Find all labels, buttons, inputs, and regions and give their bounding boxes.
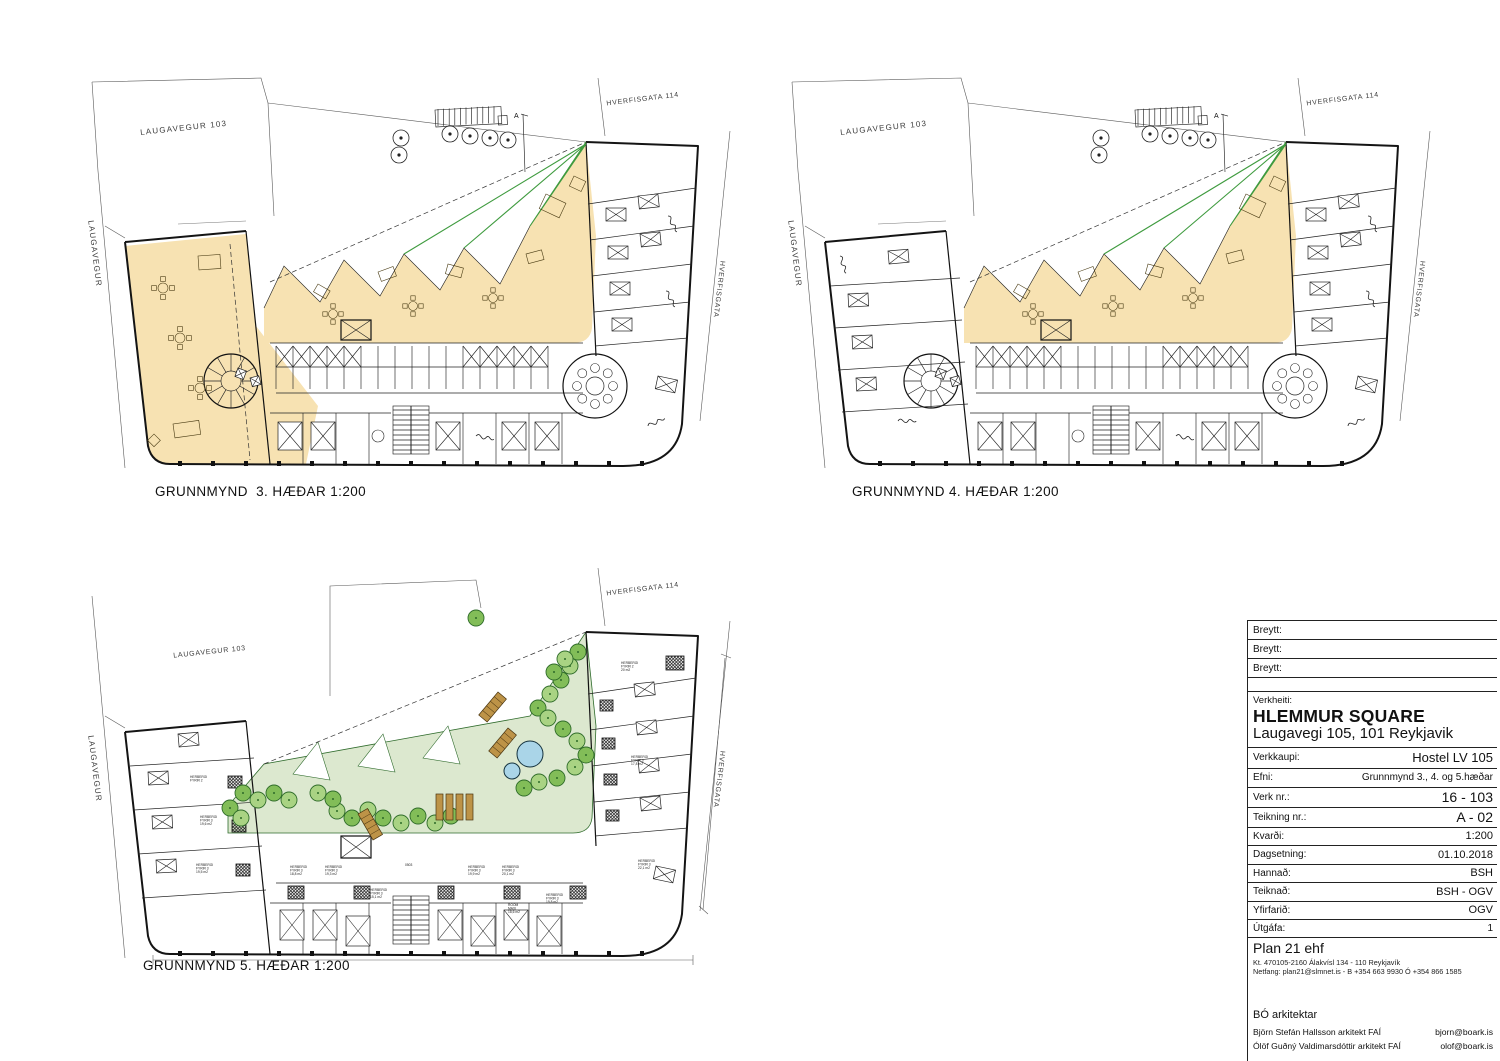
revision-row: Breytt: — [1248, 621, 1497, 640]
svg-text:HERBERGIFYRIR 319,6 m2: HERBERGIFYRIR 319,6 m2 — [200, 815, 217, 826]
svg-text:HERBERGIFYRIR 315,1 m2: HERBERGIFYRIR 315,1 m2 — [370, 888, 387, 899]
floor-plan-3: LAUGAVEGUR 103 LAUGAVEGUR HVERFISGATA 11… — [78, 76, 748, 482]
company-name: Plan 21 ehf — [1253, 940, 1493, 956]
revision-row: Breytt: — [1248, 659, 1497, 678]
street-label: LAUGAVEGUR 103 — [140, 119, 228, 137]
street-trees — [1091, 126, 1216, 163]
project-address: Laugavegi 105, 101 Reykjavik — [1253, 726, 1493, 743]
svg-text:ROOMMAXI18,6 m2: ROOMMAXI18,6 m2 — [508, 903, 520, 914]
revision-label: Breytt: — [1253, 644, 1282, 655]
street-label: LAUGAVEGUR — [786, 220, 803, 288]
field-row: Teiknað: BSH - OGV — [1248, 883, 1497, 902]
street-trees — [391, 126, 516, 163]
street-label: HVERFISGATA 114 — [606, 582, 679, 598]
field-row: Verk nr.: 16 - 103 — [1248, 788, 1497, 808]
architect-name: Björn Stefán Hallsson arkitekt FAÍ — [1253, 1026, 1381, 1039]
field-label: Verkkaupi: — [1253, 752, 1300, 763]
architect-name: Ólöf Guðný Valdimarsdóttir arkitekt FAÍ — [1253, 1040, 1401, 1053]
architects-block: BÓ arkitektar Björn Stefán Hallsson arki… — [1248, 983, 1497, 1061]
plan-caption-floor4: GRUNNMYND 4. HÆÐAR 1:200 — [852, 484, 1059, 499]
field-label: Hannað: — [1253, 868, 1291, 879]
svg-text:HERBERGIFYRIR 319,5 m2: HERBERGIFYRIR 319,5 m2 — [196, 863, 213, 874]
company-registration: Kt. 470105-2160 Álakvísl 134 - 110 Reykj… — [1253, 958, 1493, 968]
field-label: Útgáfa: — [1253, 923, 1285, 934]
architect-email: olof@boark.is — [1440, 1040, 1493, 1053]
svg-text:HERBERGIFYRIR 318,8 m2: HERBERGIFYRIR 318,8 m2 — [290, 865, 307, 876]
field-row: Verkkaupi: Hostel LV 105 — [1248, 748, 1497, 769]
section-marker: A — [514, 113, 519, 120]
company-contact: Netfang: plan21@slmnet.is - B +354 663 9… — [1253, 967, 1493, 977]
section-marker: A — [1214, 113, 1219, 120]
title-block: Breytt: Breytt: Breytt: Verkheiti: HLEMM… — [1247, 620, 1497, 1061]
company-block: Plan 21 ehf Kt. 470105-2160 Álakvísl 134… — [1248, 938, 1497, 984]
field-value: 16 - 103 — [1442, 789, 1493, 805]
field-value: 1 — [1487, 923, 1493, 934]
drawing-sheet: LAUGAVEGUR 103 LAUGAVEGUR HVERFISGATA 11… — [0, 0, 1500, 1061]
field-label: Kvarði: — [1253, 831, 1284, 842]
field-value: BSH — [1470, 867, 1493, 879]
revision-label: Breytt: — [1253, 625, 1282, 636]
field-label: Yfirfarið: — [1253, 905, 1290, 916]
architect-row: Ólöf Guðný Valdimarsdóttir arkitekt FAÍ … — [1253, 1040, 1493, 1053]
field-label: Dagsetning: — [1253, 849, 1306, 860]
street-label: LAUGAVEGUR 103 — [840, 119, 928, 137]
exterior-stair — [435, 106, 507, 127]
field-value: OGV — [1469, 904, 1493, 916]
project-label: Verkheiti: — [1253, 695, 1493, 706]
common-area-highlight — [125, 142, 596, 464]
svg-text:HERBERGIFYRIR 322,1 m2: HERBERGIFYRIR 322,1 m2 — [638, 859, 655, 870]
svg-text:HERBERGIFYRIR 320,1 m2: HERBERGIFYRIR 320,1 m2 — [502, 865, 519, 876]
field-row: Hannað: BSH — [1248, 865, 1497, 883]
common-area-highlight — [964, 142, 1296, 343]
project-block: Verkheiti: HLEMMUR SQUARE Laugavegi 105,… — [1248, 692, 1497, 748]
architect-row: Björn Stefán Hallsson arkitekt FAÍ bjorn… — [1253, 1026, 1493, 1039]
architect-email: bjorn@boark.is — [1435, 1026, 1493, 1039]
floor-plan-5: LAUGAVEGUR 103 LAUGAVEGUR HVERFISGATA 11… — [78, 566, 748, 966]
street-label: LAUGAVEGUR — [86, 220, 103, 288]
field-row: Dagsetning: 01.10.2018 — [1248, 846, 1497, 865]
field-value: 1:200 — [1465, 830, 1493, 842]
field-label: Teikning nr.: — [1253, 812, 1306, 823]
field-row: Útgáfa: 1 — [1248, 920, 1497, 938]
plan-caption-floor3: GRUNNMYND 3. HÆÐAR 1:200 — [155, 484, 366, 499]
architects-heading: BÓ arkitektar — [1253, 1009, 1493, 1021]
field-value: Grunnmynd 3., 4. og 5.hæðar — [1362, 772, 1493, 783]
svg-text:0503: 0503 — [405, 863, 413, 867]
street-label: HVERFISGATA 114 — [606, 92, 679, 108]
field-row: Efni: Grunnmynd 3., 4. og 5.hæðar — [1248, 769, 1497, 788]
project-name: HLEMMUR SQUARE — [1253, 706, 1493, 726]
field-value: BSH - OGV — [1436, 886, 1493, 898]
svg-text:HERBERGIFYRIR 220 m2: HERBERGIFYRIR 220 m2 — [621, 661, 638, 672]
field-row: Teikning nr.: A - 02 — [1248, 808, 1497, 828]
svg-text:HERBERGIFYRIR 2: HERBERGIFYRIR 2 — [190, 775, 207, 783]
field-value: 01.10.2018 — [1438, 849, 1493, 861]
plan-caption-floor5: GRUNNMYND 5. HÆÐAR 1:200 — [143, 958, 350, 973]
field-row: Kvarði: 1:200 — [1248, 828, 1497, 846]
field-label: Teiknað: — [1253, 886, 1290, 897]
field-row: Yfirfarið: OGV — [1248, 902, 1497, 920]
revision-spacer — [1248, 678, 1497, 692]
revision-row: Breytt: — [1248, 640, 1497, 659]
street-label: LAUGAVEGUR 103 — [173, 645, 246, 660]
street-label: LAUGAVEGUR — [86, 735, 103, 803]
svg-text:HERBERGIFYRIR 319,9 m2: HERBERGIFYRIR 319,9 m2 — [468, 865, 485, 876]
field-label: Efni: — [1253, 772, 1273, 783]
field-value: Hostel LV 105 — [1412, 750, 1493, 765]
field-value: A - 02 — [1456, 809, 1493, 825]
svg-text:HERBERGIFYRIR 319,8 m2: HERBERGIFYRIR 319,8 m2 — [546, 893, 563, 904]
svg-text:HERBERGIFYRIR 319,3 m2: HERBERGIFYRIR 319,3 m2 — [325, 865, 342, 876]
floor-plan-4: LAUGAVEGUR 103 LAUGAVEGUR HVERFISGATA 11… — [778, 76, 1448, 482]
street-label: HVERFISGATA 114 — [1306, 92, 1379, 108]
revision-label: Breytt: — [1253, 663, 1282, 674]
field-label: Verk nr.: — [1253, 792, 1290, 803]
exterior-stair — [1135, 106, 1207, 127]
